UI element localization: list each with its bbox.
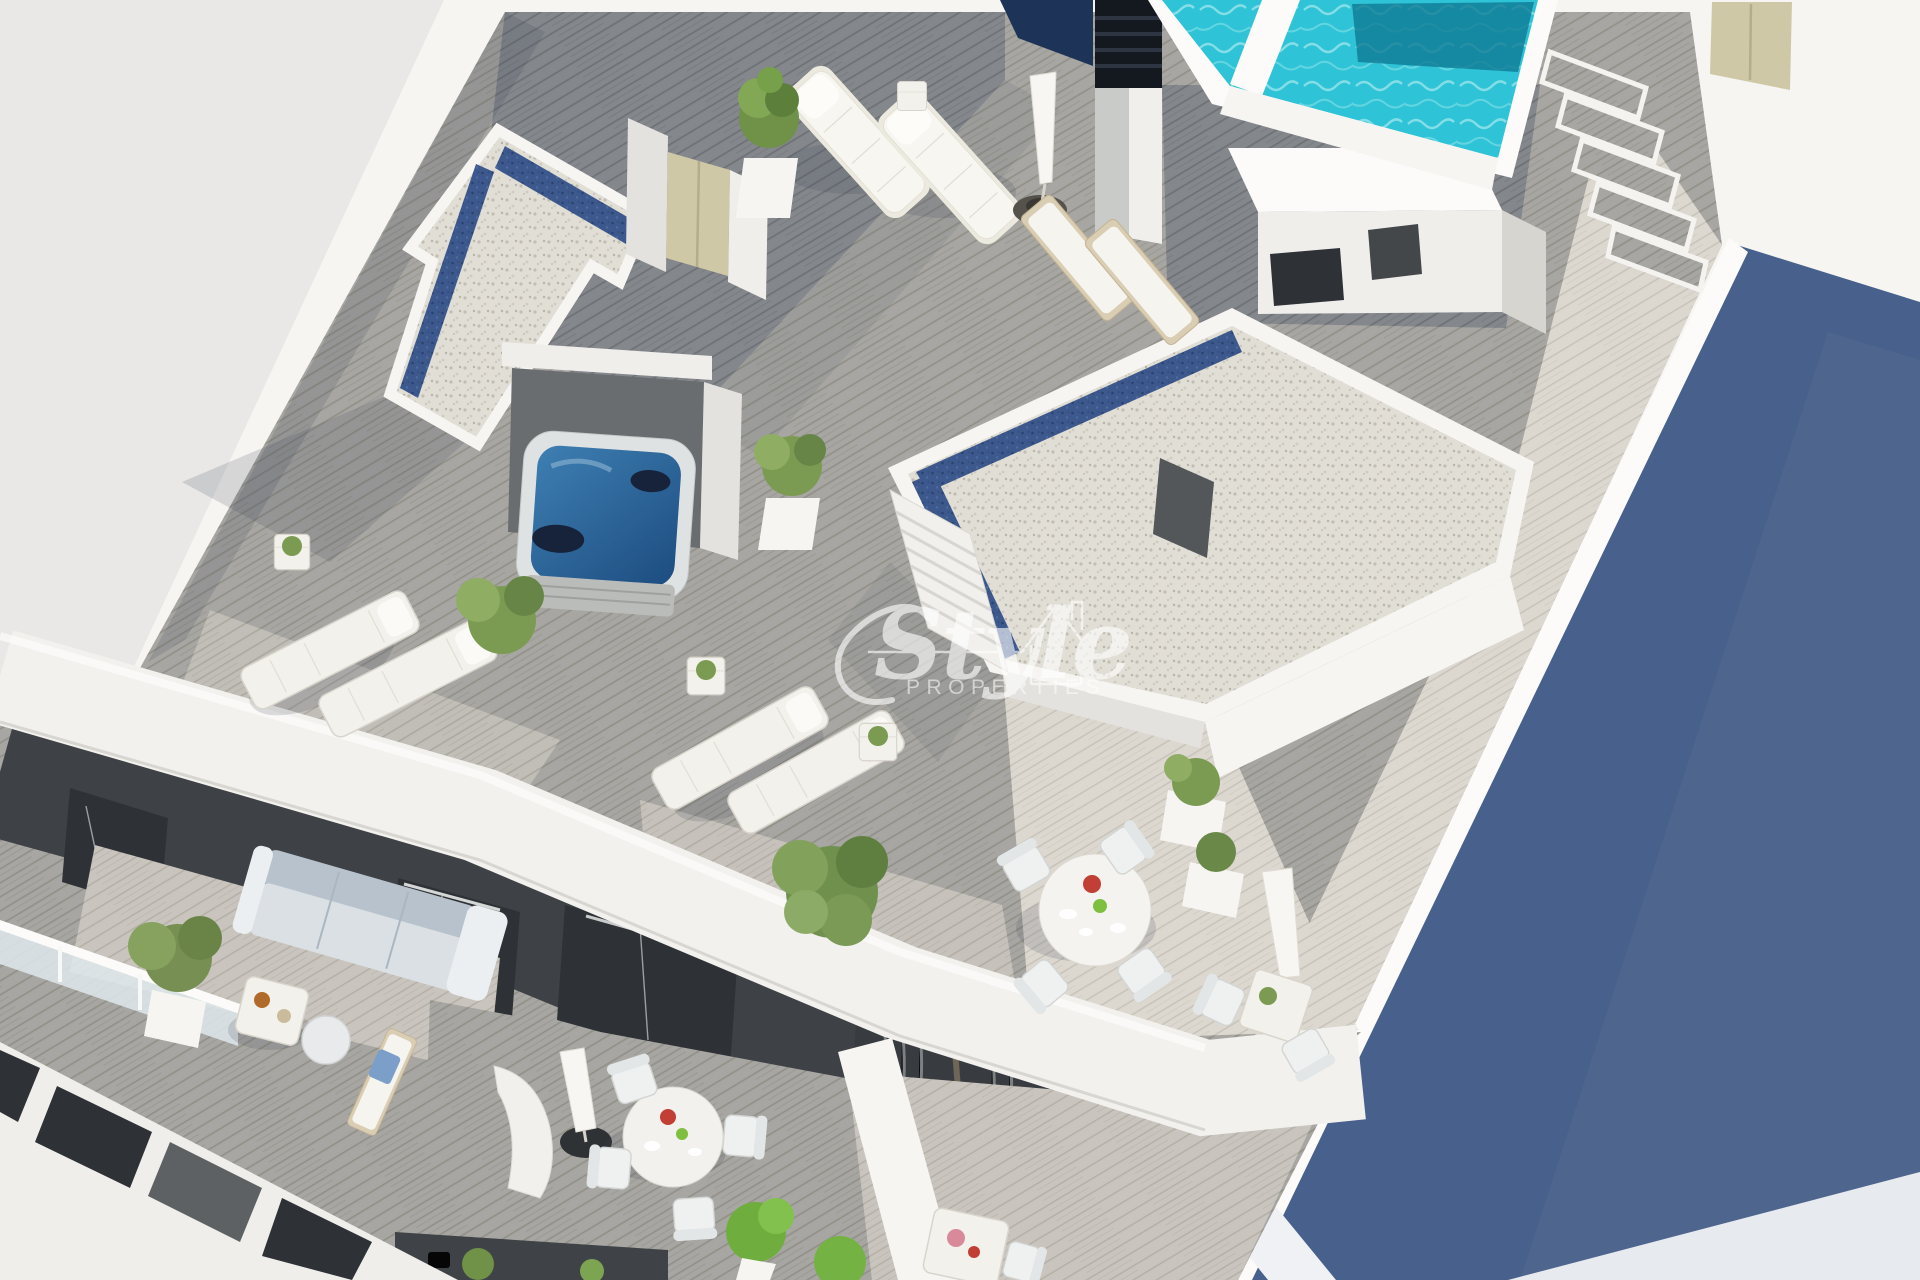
render-scene: Style PROPERTIES (0, 0, 1920, 1280)
bulkhead-window (1270, 248, 1344, 306)
pouf (302, 1016, 350, 1064)
property-render-image: Style PROPERTIES (0, 0, 1920, 1280)
watermark-tagline: PROPERTIES (906, 676, 1106, 699)
watermark: Style PROPERTIES (838, 588, 1131, 702)
bulkhead-window (1368, 224, 1422, 280)
pool-deep-edge (1352, 2, 1534, 72)
